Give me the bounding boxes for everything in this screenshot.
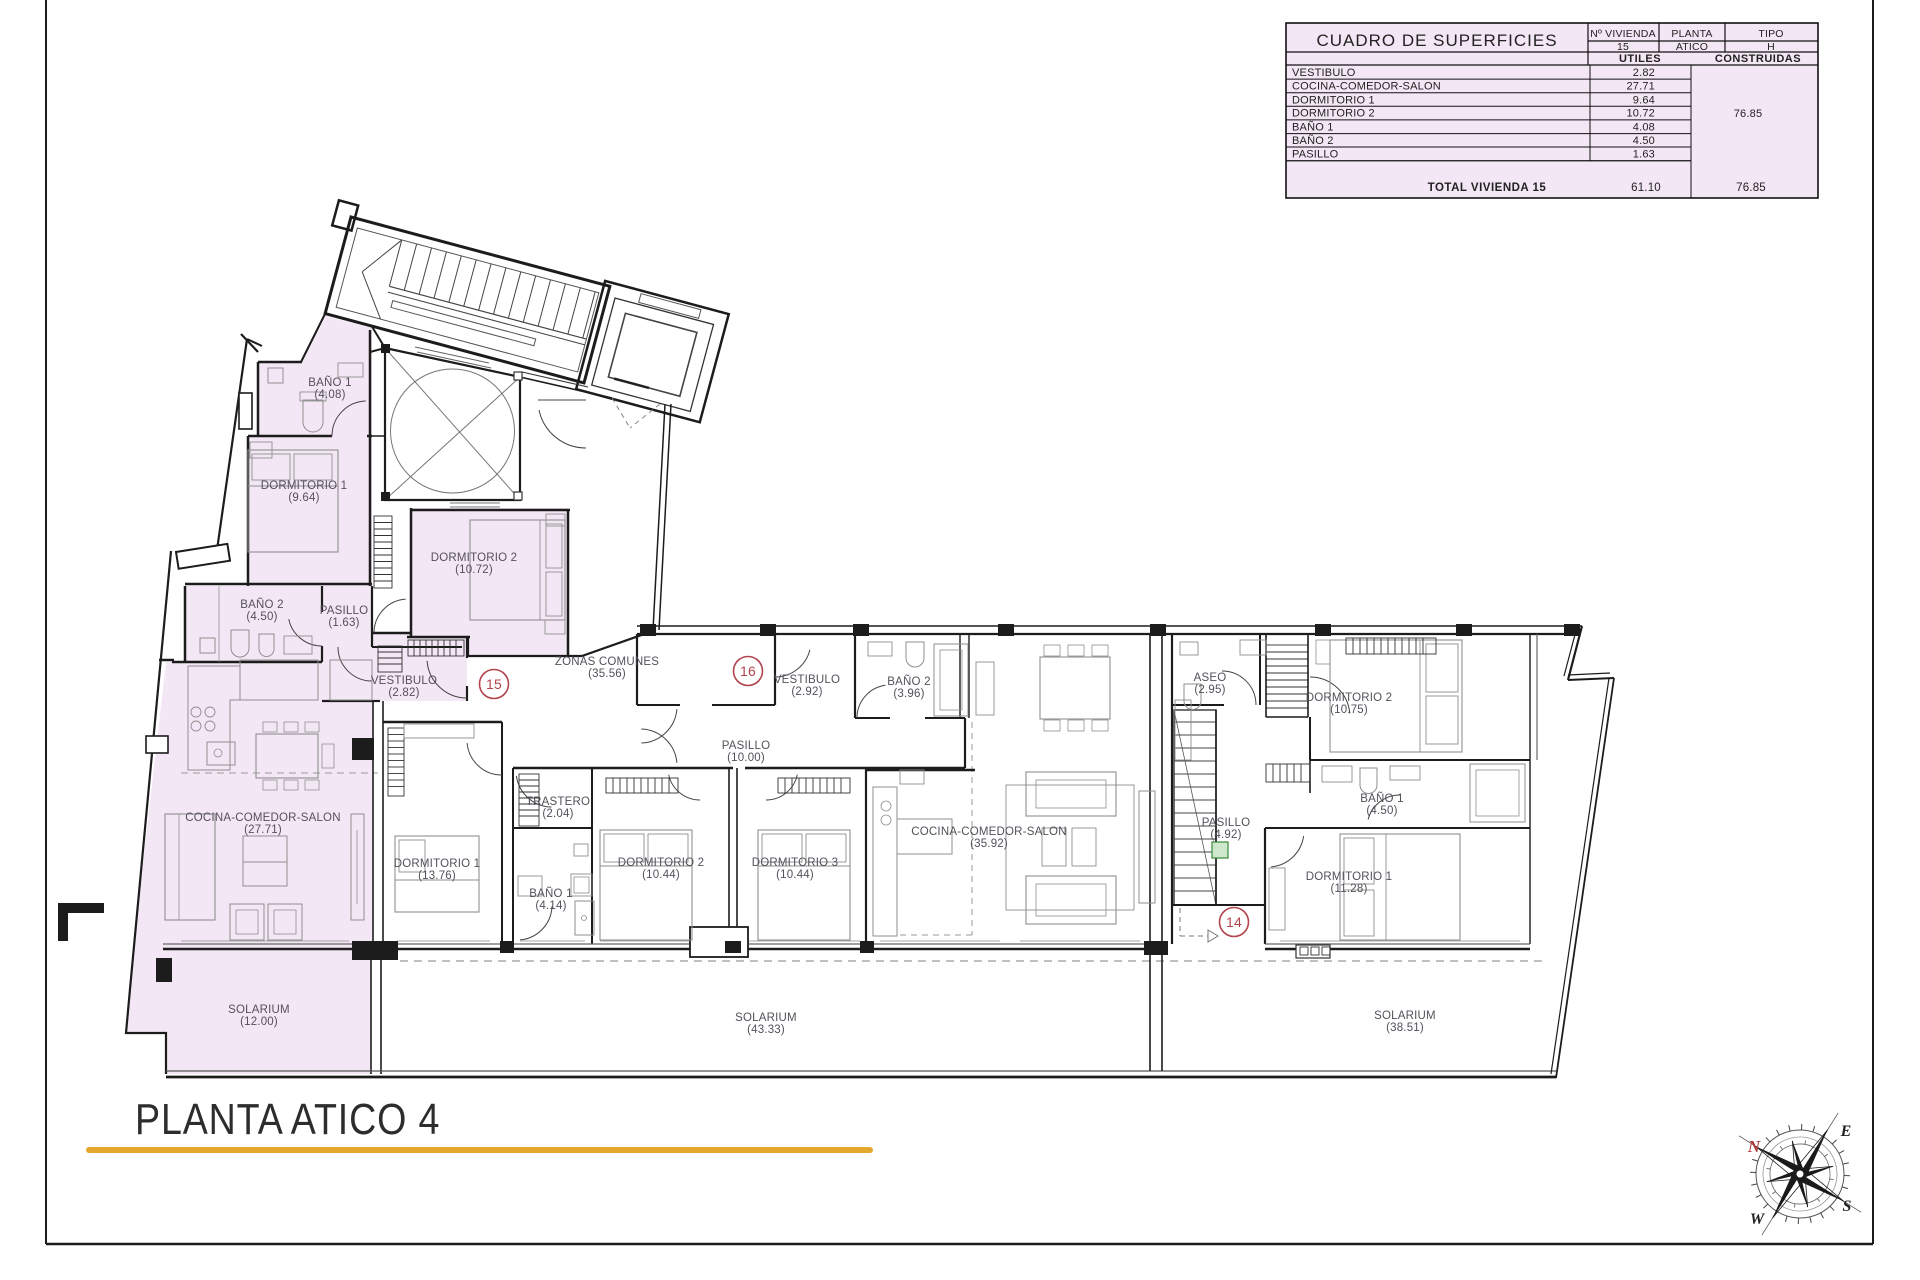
svg-text:DORMITORIO 2: DORMITORIO 2	[1292, 108, 1375, 120]
svg-text:H: H	[1767, 41, 1775, 53]
svg-text:10.72: 10.72	[1626, 108, 1655, 120]
svg-text:BAÑO 1: BAÑO 1	[1360, 792, 1403, 805]
svg-text:PLANTA: PLANTA	[1671, 28, 1712, 40]
svg-text:BAÑO 2: BAÑO 2	[1292, 134, 1334, 147]
svg-text:(2.95): (2.95)	[1194, 684, 1225, 696]
svg-text:(10.00): (10.00)	[727, 752, 765, 764]
svg-text:(4.92): (4.92)	[1210, 829, 1241, 841]
svg-text:(35.56): (35.56)	[588, 668, 626, 680]
svg-text:(35.92): (35.92)	[970, 838, 1008, 850]
svg-text:Nº VIVIENDA: Nº VIVIENDA	[1590, 28, 1656, 40]
svg-text:(3.96): (3.96)	[893, 688, 924, 700]
svg-text:VESTIBULO: VESTIBULO	[1292, 67, 1356, 79]
svg-text:76.85: 76.85	[1736, 182, 1766, 194]
svg-text:SOLARIUM: SOLARIUM	[1374, 1010, 1436, 1022]
svg-text:BAÑO 1: BAÑO 1	[1292, 120, 1334, 133]
svg-text:(4.50): (4.50)	[246, 611, 277, 623]
svg-text:DORMITORIO 1: DORMITORIO 1	[261, 480, 348, 492]
svg-text:4.50: 4.50	[1633, 135, 1655, 147]
svg-text:CONSTRUIDAS: CONSTRUIDAS	[1715, 53, 1801, 65]
svg-text:VESTIBULO: VESTIBULO	[774, 674, 840, 686]
svg-text:(11.28): (11.28)	[1331, 883, 1368, 895]
svg-text:UTILES: UTILES	[1619, 53, 1661, 65]
svg-text:CUADRO DE SUPERFICIES: CUADRO DE SUPERFICIES	[1316, 31, 1557, 50]
svg-text:15: 15	[486, 676, 502, 692]
svg-text:27.71: 27.71	[1626, 81, 1655, 93]
svg-text:(2.82): (2.82)	[388, 687, 419, 699]
svg-text:(1.63): (1.63)	[328, 617, 359, 629]
svg-text:TOTAL VIVIENDA 15: TOTAL VIVIENDA 15	[1428, 182, 1547, 194]
svg-text:VESTIBULO: VESTIBULO	[371, 675, 437, 687]
svg-text:PASILLO: PASILLO	[320, 605, 369, 617]
svg-text:BAÑO 1: BAÑO 1	[529, 887, 572, 900]
svg-text:(38.51): (38.51)	[1386, 1022, 1424, 1034]
svg-text:15: 15	[1617, 41, 1629, 53]
svg-text:PASILLO: PASILLO	[1202, 817, 1251, 829]
svg-text:2.82: 2.82	[1633, 67, 1655, 79]
svg-text:BAÑO 1: BAÑO 1	[308, 376, 351, 389]
svg-text:(43.33): (43.33)	[747, 1024, 785, 1036]
svg-text:(9.64): (9.64)	[288, 492, 319, 504]
svg-text:SOLARIUM: SOLARIUM	[228, 1004, 290, 1016]
svg-text:(10.72): (10.72)	[455, 564, 493, 576]
svg-text:ASEO: ASEO	[1194, 672, 1227, 684]
svg-text:DORMITORIO 1: DORMITORIO 1	[1306, 871, 1393, 883]
svg-text:9.64: 9.64	[1633, 94, 1655, 106]
svg-text:(13.76): (13.76)	[418, 870, 456, 882]
svg-text:COCINA-COMEDOR-SALON: COCINA-COMEDOR-SALON	[185, 812, 340, 824]
svg-text:14: 14	[1226, 914, 1242, 930]
svg-text:N: N	[1747, 1137, 1761, 1156]
svg-text:DORMITORIO 1: DORMITORIO 1	[394, 858, 481, 870]
svg-text:COCINA-COMEDOR-SALON: COCINA-COMEDOR-SALON	[911, 826, 1066, 838]
svg-text:COCINA-COMEDOR-SALON: COCINA-COMEDOR-SALON	[1292, 81, 1441, 93]
svg-text:(27.71): (27.71)	[244, 824, 282, 836]
svg-text:(10.44): (10.44)	[776, 869, 814, 881]
svg-text:(4.14): (4.14)	[535, 900, 566, 912]
svg-text:DORMITORIO 3: DORMITORIO 3	[752, 857, 839, 869]
svg-text:E: E	[1840, 1123, 1852, 1140]
svg-text:(10.44): (10.44)	[642, 869, 680, 881]
svg-text:SOLARIUM: SOLARIUM	[735, 1012, 797, 1024]
svg-text:W: W	[1750, 1211, 1766, 1228]
svg-text:16: 16	[740, 663, 756, 679]
svg-text:1.63: 1.63	[1633, 149, 1655, 161]
svg-text:(2.92): (2.92)	[791, 686, 822, 698]
svg-text:DORMITORIO 2: DORMITORIO 2	[618, 857, 705, 869]
svg-text:BAÑO 2: BAÑO 2	[887, 675, 930, 688]
svg-text:4.08: 4.08	[1633, 121, 1655, 133]
svg-text:(12.00): (12.00)	[240, 1016, 278, 1028]
svg-text:BAÑO 2: BAÑO 2	[240, 598, 283, 611]
svg-text:TRASTERO: TRASTERO	[526, 796, 590, 808]
svg-text:TIPO: TIPO	[1758, 28, 1783, 40]
svg-text:DORMITORIO 2: DORMITORIO 2	[1306, 692, 1393, 704]
svg-text:PASILLO: PASILLO	[1292, 149, 1339, 161]
svg-text:(10.75): (10.75)	[1330, 704, 1368, 716]
svg-text:DORMITORIO 2: DORMITORIO 2	[431, 552, 518, 564]
svg-text:PASILLO: PASILLO	[722, 740, 771, 752]
svg-text:ZONAS COMUNES: ZONAS COMUNES	[555, 656, 659, 668]
svg-text:76.85: 76.85	[1734, 108, 1763, 120]
svg-text:(4.08): (4.08)	[314, 389, 345, 401]
svg-text:PLANTA ATICO 4: PLANTA ATICO 4	[135, 1094, 440, 1143]
svg-text:61.10: 61.10	[1631, 182, 1661, 194]
svg-text:S: S	[1843, 1198, 1852, 1215]
svg-text:ATICO: ATICO	[1676, 41, 1708, 53]
svg-text:DORMITORIO 1: DORMITORIO 1	[1292, 94, 1375, 106]
svg-text:(4.50): (4.50)	[1366, 805, 1397, 817]
svg-text:(2.04): (2.04)	[542, 808, 573, 820]
